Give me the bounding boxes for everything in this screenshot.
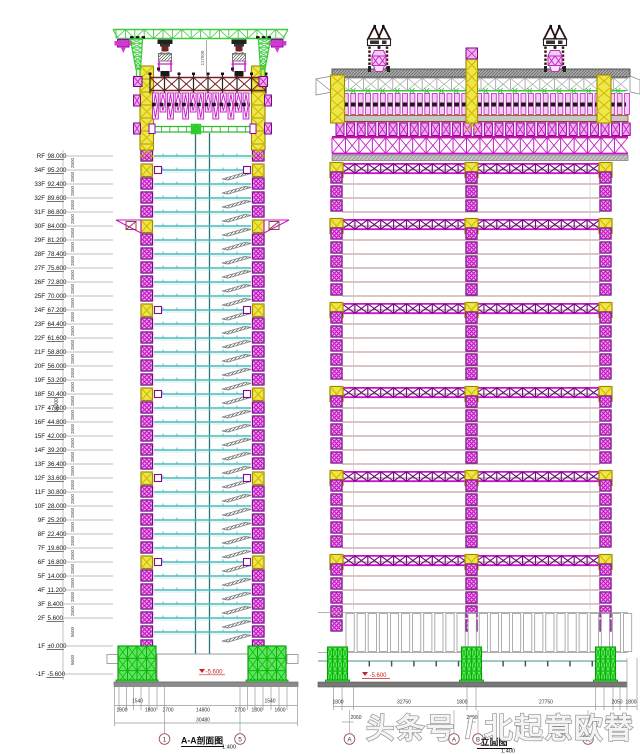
svg-text:23F: 23F <box>34 321 45 328</box>
svg-text:5: 5 <box>238 736 242 743</box>
svg-text:-1F: -1F <box>36 671 46 678</box>
svg-text:33F: 33F <box>34 181 45 188</box>
svg-text:2800: 2800 <box>70 297 75 308</box>
svg-text:30.800: 30.800 <box>48 489 67 496</box>
svg-text:5.600: 5.600 <box>48 615 64 622</box>
svg-text:28.000: 28.000 <box>48 503 67 510</box>
svg-text:2800: 2800 <box>70 409 75 420</box>
svg-text:2800: 2800 <box>70 283 75 294</box>
svg-text:98000: 98000 <box>54 398 60 412</box>
svg-text:30F: 30F <box>34 223 45 230</box>
svg-text:14800: 14800 <box>196 708 210 714</box>
svg-text:26F: 26F <box>34 279 45 286</box>
svg-text:2700: 2700 <box>162 708 173 714</box>
svg-text:2800: 2800 <box>70 479 75 490</box>
svg-text:39.200: 39.200 <box>48 447 67 454</box>
svg-text:2800: 2800 <box>70 605 75 616</box>
svg-text:头条号 / 北起意欧替: 头条号 / 北起意欧替 <box>366 712 634 745</box>
svg-text:24F: 24F <box>34 307 45 314</box>
svg-text:84.000: 84.000 <box>48 223 67 230</box>
svg-text:2800: 2800 <box>70 171 75 182</box>
svg-text:95.200: 95.200 <box>48 167 67 174</box>
svg-text:14F: 14F <box>34 447 45 454</box>
svg-text:RF: RF <box>37 153 45 160</box>
svg-text:53.200: 53.200 <box>48 377 67 384</box>
svg-text:2800: 2800 <box>70 227 75 238</box>
svg-text:8F: 8F <box>38 531 45 538</box>
svg-text:70.000: 70.000 <box>48 293 67 300</box>
svg-text:2800: 2800 <box>70 591 75 602</box>
svg-text:17F: 17F <box>34 405 45 412</box>
svg-text:11.200: 11.200 <box>48 587 67 594</box>
svg-text:19F: 19F <box>34 377 45 384</box>
svg-text:1: 1 <box>163 736 167 743</box>
svg-text:31F: 31F <box>34 209 45 216</box>
svg-text:A: A <box>347 737 351 743</box>
svg-text:32F: 32F <box>34 195 45 202</box>
svg-text:2800: 2800 <box>70 493 75 504</box>
svg-text:56.000: 56.000 <box>48 363 67 370</box>
svg-text:14.000: 14.000 <box>48 573 67 580</box>
svg-text:117500: 117500 <box>200 50 205 65</box>
svg-text:25F: 25F <box>34 293 45 300</box>
svg-text:81.200: 81.200 <box>48 237 67 244</box>
svg-text:92.400: 92.400 <box>48 181 67 188</box>
svg-text:2800: 2800 <box>70 269 75 280</box>
svg-text:1800: 1800 <box>625 700 636 706</box>
svg-text:11F: 11F <box>35 489 45 496</box>
svg-text:16.800: 16.800 <box>48 559 67 566</box>
svg-text:2800: 2800 <box>70 241 75 252</box>
svg-text:9F: 9F <box>38 517 45 524</box>
svg-text:2800: 2800 <box>70 339 75 350</box>
svg-text:2800: 2800 <box>70 521 75 532</box>
svg-text:36.400: 36.400 <box>48 461 67 468</box>
svg-text:2800: 2800 <box>70 549 75 560</box>
svg-text:21F: 21F <box>34 349 45 356</box>
svg-text:30480: 30480 <box>196 718 210 724</box>
svg-text:1540: 1540 <box>264 699 275 705</box>
svg-text:78.400: 78.400 <box>48 251 67 258</box>
svg-text:32750: 32750 <box>397 700 411 706</box>
svg-text:2800: 2800 <box>70 381 75 392</box>
svg-text:5600: 5600 <box>70 626 75 637</box>
svg-text:20F: 20F <box>34 363 45 370</box>
svg-text:27750: 27750 <box>539 700 553 706</box>
svg-text:2800: 2800 <box>70 563 75 574</box>
svg-text:5F: 5F <box>38 573 45 580</box>
svg-text:2050: 2050 <box>611 700 622 706</box>
svg-text:2800: 2800 <box>70 185 75 196</box>
svg-text:28F: 28F <box>34 251 45 258</box>
svg-text:98.000: 98.000 <box>48 153 67 160</box>
svg-text:2800: 2800 <box>70 395 75 406</box>
svg-text:44.800: 44.800 <box>48 419 67 426</box>
svg-text:64.400: 64.400 <box>48 321 67 328</box>
svg-text:13F: 13F <box>34 461 45 468</box>
svg-text:2800: 2800 <box>70 577 75 588</box>
svg-text:2800: 2800 <box>70 255 75 266</box>
svg-text:2800: 2800 <box>70 199 75 210</box>
svg-text:27F: 27F <box>34 265 45 272</box>
svg-text:2800: 2800 <box>70 311 75 322</box>
svg-text:1800: 1800 <box>251 708 262 714</box>
svg-text:1:400: 1:400 <box>222 745 236 751</box>
svg-text:1800: 1800 <box>456 700 467 706</box>
svg-text:2800: 2800 <box>70 213 75 224</box>
svg-text:2F: 2F <box>38 615 45 622</box>
svg-text:2800: 2800 <box>70 465 75 476</box>
svg-text:1540: 1540 <box>132 699 143 705</box>
svg-text:1800: 1800 <box>116 708 127 714</box>
svg-text:1600: 1600 <box>274 708 285 714</box>
svg-text:2800: 2800 <box>70 451 75 462</box>
svg-text:4F: 4F <box>38 587 45 594</box>
svg-text:16F: 16F <box>34 419 45 426</box>
svg-text:5600: 5600 <box>70 654 75 665</box>
svg-text:15F: 15F <box>34 433 45 440</box>
svg-text:3F: 3F <box>38 601 45 608</box>
svg-text:8.400: 8.400 <box>48 601 64 608</box>
svg-text:22F: 22F <box>34 335 45 342</box>
svg-text:2060: 2060 <box>350 715 361 721</box>
svg-text:6F: 6F <box>38 559 45 566</box>
svg-text:50.400: 50.400 <box>48 391 67 398</box>
svg-text:2800: 2800 <box>70 353 75 364</box>
svg-text:2800: 2800 <box>70 423 75 434</box>
svg-text:2800: 2800 <box>70 325 75 336</box>
svg-text:89.600: 89.600 <box>48 195 67 202</box>
svg-text:1F: 1F <box>38 643 45 650</box>
svg-text:2800: 2800 <box>70 437 75 448</box>
svg-text:1:400: 1:400 <box>501 749 515 754</box>
svg-text:86.800: 86.800 <box>48 209 67 216</box>
svg-text:2800: 2800 <box>70 157 75 168</box>
svg-text:A-A剖面图: A-A剖面图 <box>181 735 223 746</box>
svg-text:75.600: 75.600 <box>48 265 67 272</box>
svg-text:2800: 2800 <box>70 535 75 546</box>
svg-text:34F: 34F <box>34 167 45 174</box>
svg-text:7F: 7F <box>38 545 45 552</box>
svg-text:2800: 2800 <box>70 507 75 518</box>
svg-text:61.600: 61.600 <box>48 335 67 342</box>
svg-text:±0.000: ±0.000 <box>48 643 67 650</box>
svg-text:58.800: 58.800 <box>48 349 67 356</box>
svg-text:10F: 10F <box>34 503 45 510</box>
svg-text:1800: 1800 <box>145 708 156 714</box>
svg-text:1800: 1800 <box>332 700 343 706</box>
svg-text:-5.600: -5.600 <box>369 673 387 679</box>
svg-text:33.600: 33.600 <box>48 475 67 482</box>
svg-text:18F: 18F <box>34 391 45 398</box>
svg-text:25.200: 25.200 <box>48 517 67 524</box>
svg-text:42.000: 42.000 <box>48 433 67 440</box>
svg-text:12F: 12F <box>34 475 45 482</box>
svg-text:72.800: 72.800 <box>48 279 67 286</box>
svg-text:67.200: 67.200 <box>48 307 67 314</box>
svg-text:29F: 29F <box>34 237 45 244</box>
svg-text:22.400: 22.400 <box>48 531 67 538</box>
svg-text:2800: 2800 <box>70 367 75 378</box>
svg-text:19.600: 19.600 <box>48 545 67 552</box>
